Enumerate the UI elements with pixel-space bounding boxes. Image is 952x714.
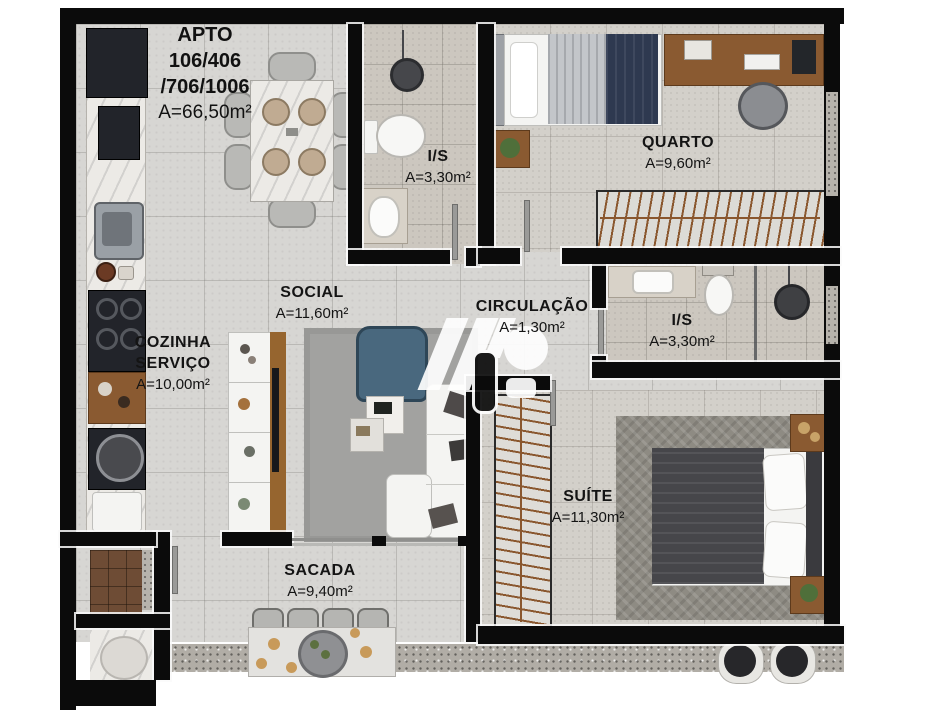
plate-small [350, 628, 360, 638]
dish [118, 266, 134, 280]
plate-small [256, 658, 267, 669]
room-label-sacada: SACADA A=9,40m² [260, 560, 380, 602]
room-name: SACADA [260, 560, 380, 581]
bowl [118, 396, 130, 408]
wall-bath2-bottom [592, 362, 840, 378]
nightstand-tray [798, 422, 810, 434]
decor-plant [238, 498, 250, 510]
pouf-top [776, 645, 808, 677]
keyboard [744, 54, 780, 70]
desk-cabinet [792, 40, 816, 74]
table-centerpiece [286, 128, 298, 136]
sideboard-shelf-line [228, 482, 270, 483]
wall-shaft-right [154, 532, 170, 680]
room-area: A=11,30m² [528, 507, 648, 528]
room-name: COZINHA [108, 332, 238, 353]
coffee-table-book [374, 402, 392, 414]
plate [298, 98, 326, 126]
wall-is-quarto [478, 24, 494, 264]
burner [120, 298, 142, 320]
plate [262, 148, 290, 176]
room-name-2: SERVIÇO [108, 353, 238, 374]
laundry-tank [92, 492, 142, 532]
plate-small [360, 646, 372, 658]
room-name: CIRCULAÇÃO [458, 296, 606, 317]
room-label-quarto: QUARTO A=9,60m² [618, 132, 738, 174]
room-area: A=10,00m² [108, 374, 238, 395]
wall-kitchen-sacada-a [60, 532, 156, 546]
room-name: I/S [632, 310, 732, 331]
door-stop [372, 536, 386, 546]
room-label-is-mid: I/S A=3,30m² [632, 310, 732, 352]
wall-suite-bottom [478, 626, 844, 644]
wall-quarto-bottom-b [562, 248, 840, 264]
room-area: A=11,60m² [252, 303, 372, 324]
room-name: SUÍTE [528, 486, 648, 507]
mug [96, 262, 116, 282]
dining-chair [268, 198, 316, 228]
tv-screen [272, 368, 279, 472]
sink-bowl [368, 196, 400, 238]
watermark-blob [506, 378, 536, 398]
room-label-is-top: I/S A=3,30m² [388, 146, 488, 188]
decor-vase [248, 356, 256, 364]
title-apto: APTO [130, 22, 280, 48]
office-chair [738, 82, 788, 130]
wall-is-bottom [348, 250, 450, 264]
title-units-1: 106/406 [130, 48, 280, 74]
room-name: I/S [388, 146, 488, 167]
decor-plant [244, 446, 255, 457]
floor-plan-image: APTO 106/406 /706/1006 A=66,50m² I/S A=3… [0, 0, 952, 714]
title-area: A=66,50m² [130, 100, 280, 126]
watermark-bar [472, 350, 498, 414]
shower-glass [754, 262, 757, 364]
title-block: APTO 106/406 /706/1006 A=66,50m² [130, 22, 280, 126]
sideboard-shelf-line [228, 432, 270, 433]
quarto-door-leaf [524, 200, 530, 252]
shower-head [390, 58, 424, 92]
wall-hall-bottom [76, 680, 156, 706]
washer-drum [96, 434, 144, 482]
bath2-sink-bowl [632, 270, 674, 294]
plant [500, 138, 520, 158]
kitchen-door-leaf [172, 546, 178, 594]
grill-food [321, 650, 330, 659]
wall-kitchen-sacada-b [222, 532, 292, 546]
coffee-table-box [356, 426, 370, 436]
room-area: A=9,40m² [260, 581, 380, 602]
desk-books [684, 40, 712, 60]
wall-social-suite [466, 376, 480, 642]
suite-headboard [806, 452, 822, 580]
grill-food [310, 640, 319, 649]
decor-bowl [238, 398, 250, 410]
room-area: A=3,30m² [388, 167, 488, 188]
pillow [510, 42, 538, 118]
room-name: SOCIAL [252, 282, 372, 303]
suite-blanket [652, 448, 764, 584]
quarto-window-sill [826, 92, 838, 196]
nightstand [790, 414, 828, 452]
burner [96, 298, 118, 320]
wall-shaft-bottom [76, 614, 170, 628]
bed-blanket-navy [606, 34, 658, 124]
pouf-top [724, 645, 756, 677]
sink-basin [102, 212, 132, 246]
room-label-circulacao: CIRCULAÇÃO A=1,30m² [458, 296, 606, 338]
nightstand-tray [810, 432, 820, 442]
plate-small [286, 662, 297, 673]
nightstand-plant [800, 584, 818, 602]
room-label-suite: SUÍTE A=11,30m² [528, 486, 648, 528]
shower2-head [774, 284, 810, 320]
decor-vase [240, 344, 250, 354]
door-stop [458, 536, 474, 546]
suite-pillow [762, 453, 808, 512]
wall-left [60, 8, 76, 710]
hall-round-table [100, 636, 148, 680]
bathroom-door-leaf [452, 204, 458, 260]
room-area: A=9,60m² [618, 153, 738, 174]
wall-is-left [348, 24, 362, 264]
room-area: A=3,30m² [632, 331, 732, 352]
room-label-cozinha: COZINHA SERVIÇO A=10,00m² [108, 332, 238, 395]
service-shaft-tiles [90, 550, 142, 614]
plate [298, 148, 326, 176]
bath2-window-sill [826, 286, 838, 344]
wardrobe [596, 190, 828, 250]
title-units-2: /706/1006 [130, 74, 280, 100]
armchair [356, 326, 428, 402]
room-label-social: SOCIAL A=11,60m² [252, 282, 372, 324]
bed-sheet-folds [548, 34, 606, 124]
wall-quarto-bottom-a [478, 248, 520, 264]
room-area: A=1,30m² [458, 317, 606, 338]
plate-small [268, 638, 280, 650]
suite-pillow [762, 521, 808, 580]
wardrobe-rail [600, 217, 820, 219]
room-name: QUARTO [618, 132, 738, 153]
closet-rail [520, 396, 522, 622]
